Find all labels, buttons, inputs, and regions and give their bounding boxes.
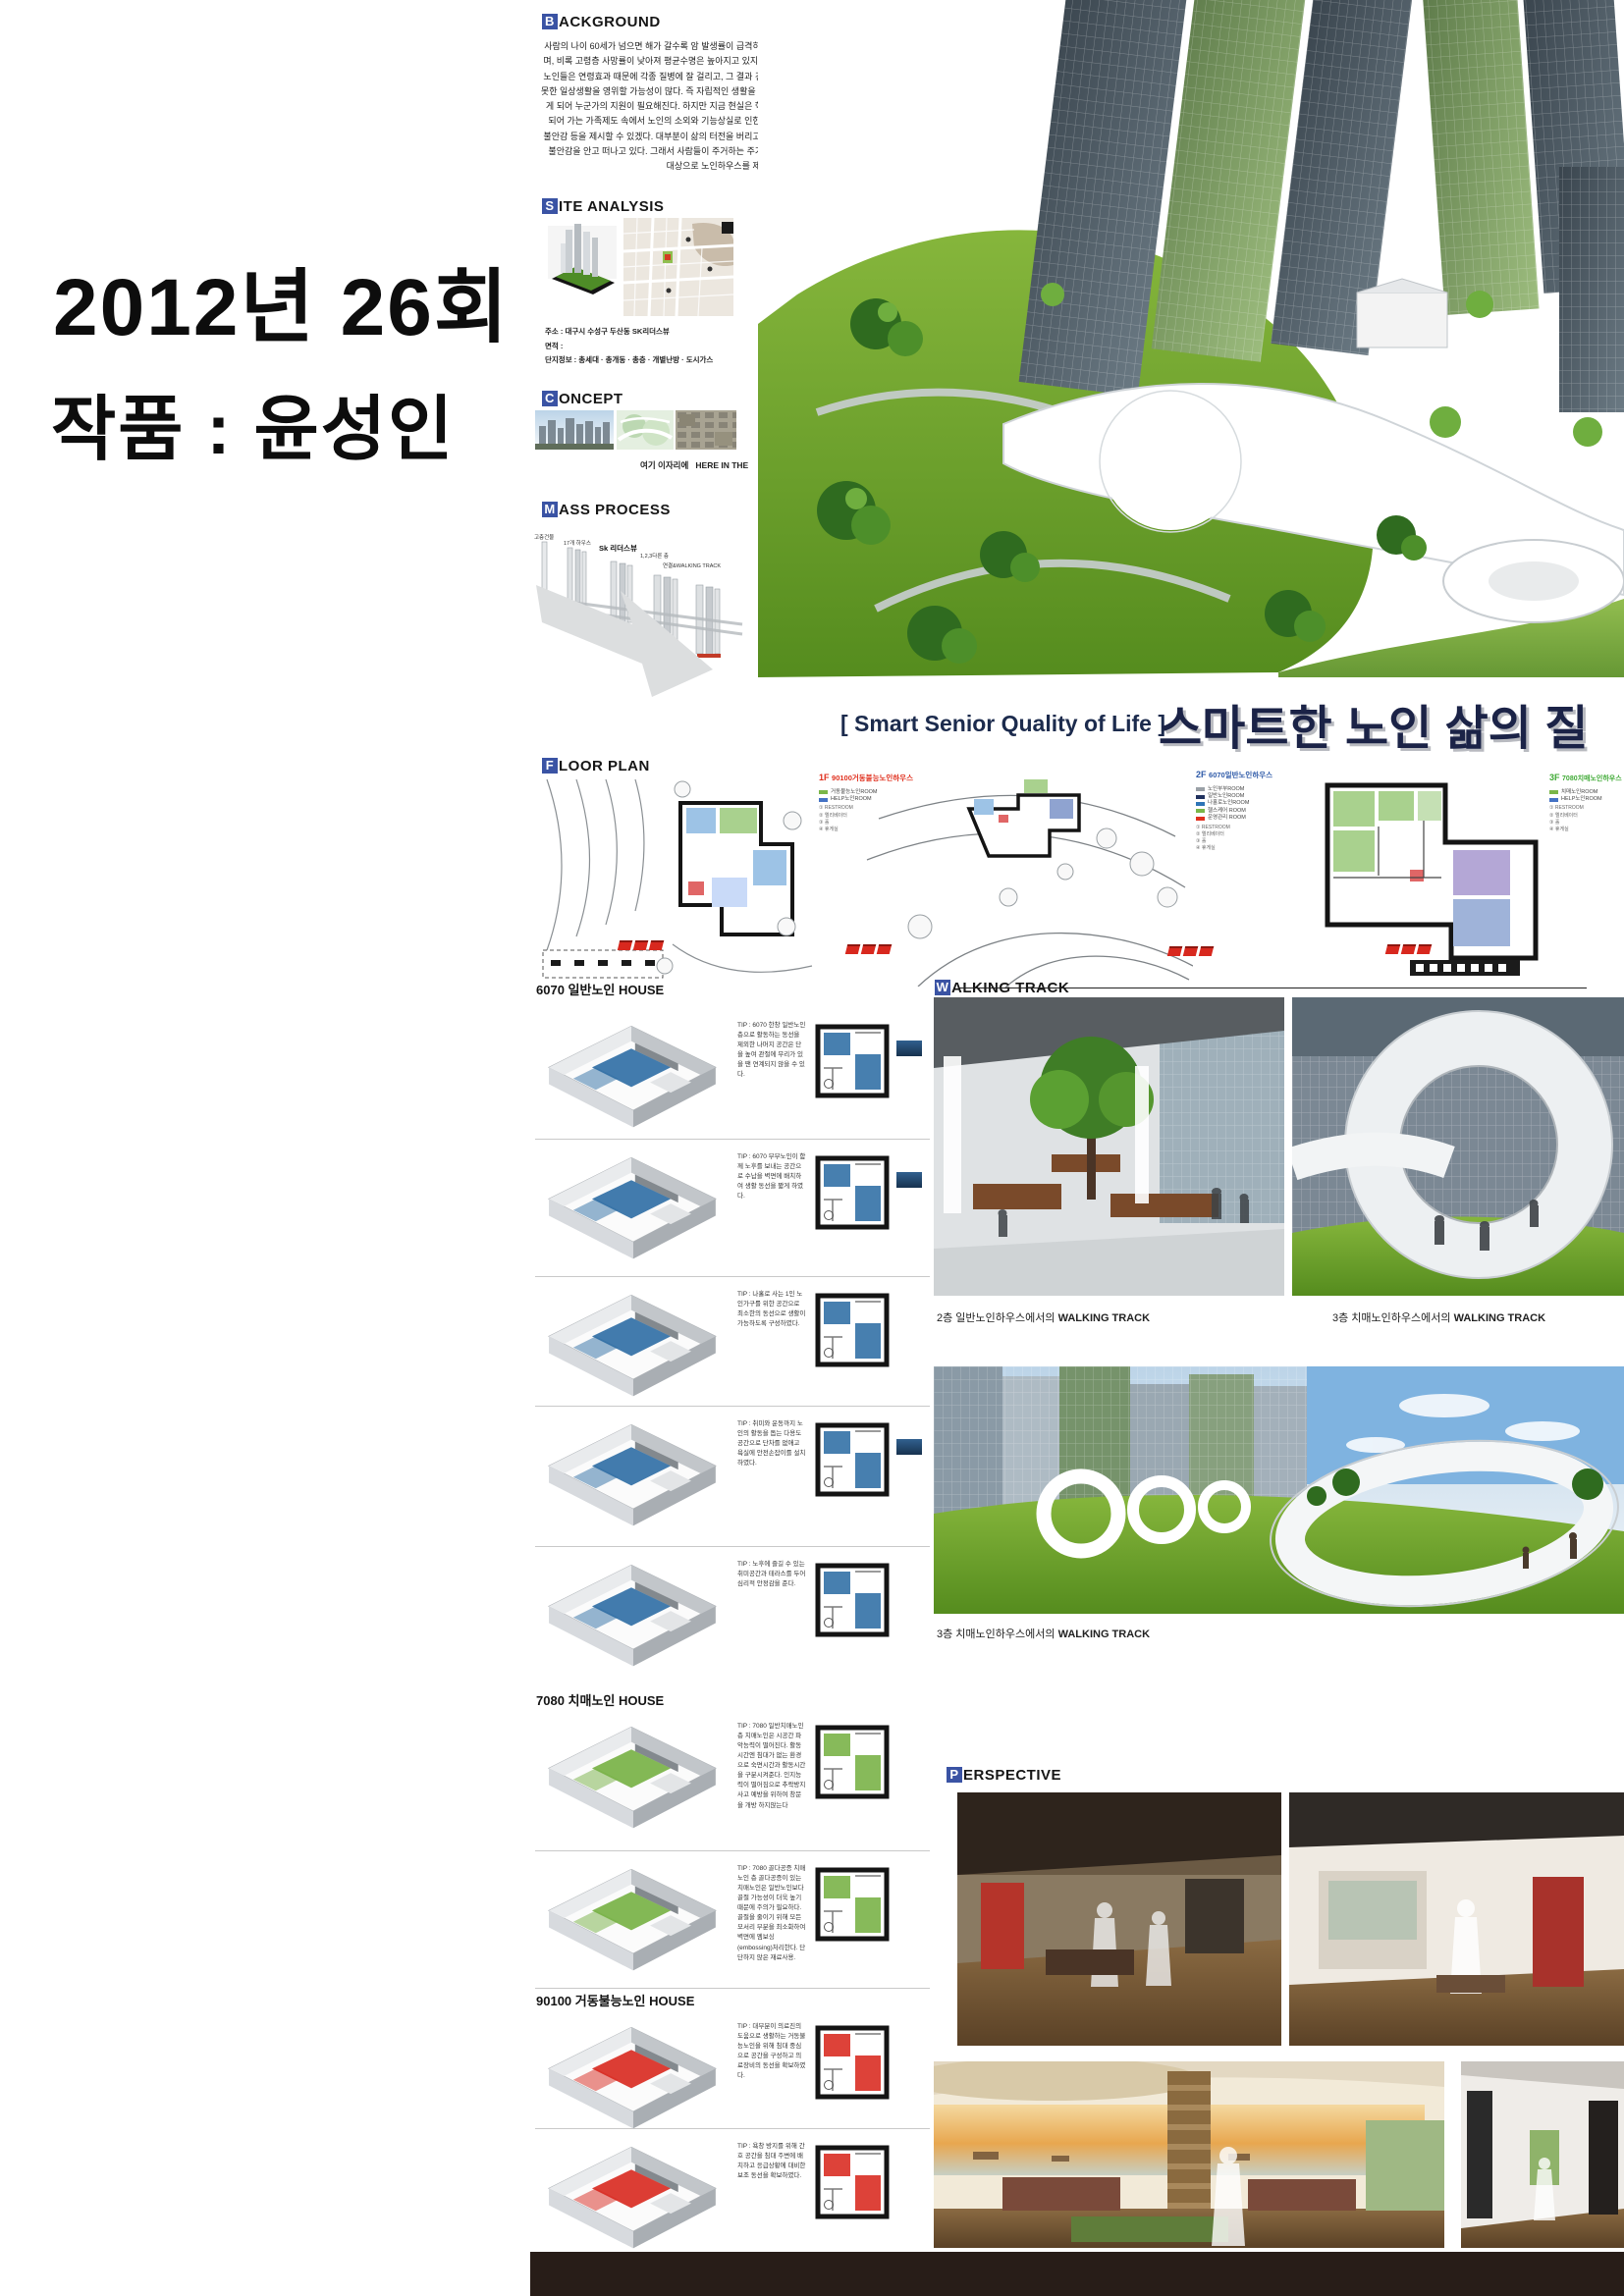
perspective-interior-sunset-lounge: [934, 2061, 1444, 2248]
site-address: 주소 : 대구시 수성구 두산동 SK리더스뷰: [545, 326, 670, 337]
unit-plan: [814, 1866, 891, 1943]
unit-axon-model: [535, 1282, 728, 1404]
section-header-floor-plan: FLOOR PLAN: [542, 758, 650, 774]
mass-step-label: 연결&WALKING TRACK: [663, 561, 721, 569]
plan-notes: ① RESTROOM② 엘리베이터 ③ 홀④ 휴게실: [1549, 805, 1624, 833]
walking-track-loop-render: [1292, 997, 1624, 1296]
unit-row: TIP : 7080 일반치매노인 층 치매노인은 시공간 파악능력이 떨어진다…: [535, 1708, 930, 1851]
legend-swatch: [819, 798, 828, 802]
concept-caption: 여기 이자리에 HERE IN THE: [640, 459, 748, 471]
mass-step-label: 1,2,3다른 층: [640, 552, 669, 560]
red-mass-icons: [1386, 944, 1431, 954]
unit-tip: TIP : 대부분이 의료진의 도움으로 생활하는 거동불능노인을 위해 침대 …: [737, 2022, 806, 2081]
unit-row: TIP : 대부분이 의료진의 도움으로 생활하는 거동불능노인을 위해 침대 …: [535, 2008, 930, 2129]
concept-image-green: [617, 410, 674, 450]
floor-plan-2f-drawing: [859, 777, 1193, 987]
competition-board: BACKGROUND 사람의 나이 60세가 넘으면 해가 갈수록 암 발생률이…: [530, 0, 1624, 2296]
section-header-background: BACKGROUND: [542, 14, 661, 30]
title-english: [ Smart Senior Quality of Life ]: [840, 711, 1165, 737]
site-info: 단지정보 : 총세대 · 총개동 · 총층 · 개별난방 · 도시가스: [545, 354, 713, 365]
unit-tip: TIP : 7080 골다공증 치매노인 층 골다공증이 있는 치매노인은 일반…: [737, 1864, 806, 1963]
concept-image-city: [535, 410, 614, 450]
concept-image-aerial: [676, 410, 736, 450]
perspective-interior-corridor: [1461, 2061, 1624, 2248]
unit-plan: [814, 1023, 891, 1099]
floor-plan-3f-drawing: [1316, 775, 1546, 987]
legend-swatch: [819, 790, 828, 794]
walking-track-caption-left: 2층 일반노인하우스에서의 WALKING TRACK: [937, 1309, 1150, 1325]
perspective-interior-lounge: [957, 1792, 1281, 2046]
unit-plan: [814, 1421, 891, 1498]
floor-plan-1f-drawing: [535, 777, 815, 987]
unit-row: TIP : 취미와 운동까지 노인의 활동을 돕는 다용도 공간으로 단차를 없…: [535, 1406, 930, 1547]
poster-scan: 2012년 26회 작품 : 윤성인: [0, 0, 1624, 2296]
unit-tip: TIP : 욕창 방지를 위해 간호 공간을 침대 주변에 배치하고 응급상황에…: [737, 2142, 806, 2181]
process-arrow: [536, 579, 718, 699]
section-header-perspective: PERSPECTIVE: [947, 1767, 1061, 1784]
unit-tip: TIP : 취미와 운동까지 노인의 활동을 돕는 다용도 공간으로 단차를 없…: [737, 1419, 806, 1468]
unit-row: TIP : 6070 부부노인이 함께 노후를 보내는 공간으로 수납을 벽면에…: [535, 1139, 930, 1277]
unit-axon-model: [535, 1714, 728, 1836]
background-paragraph: 사람의 나이 60세가 넘으면 해가 갈수록 암 발생률이 급격히 높아지며, …: [538, 39, 787, 175]
unit-axon-model: [535, 1145, 728, 1266]
mass-step-label: 고층건물: [534, 533, 554, 541]
title-korean: 스마트한 노인 삶의 질: [1159, 689, 1588, 758]
unit-row: TIP : 나홀로 사는 1인 노인가구를 위한 공간으로 최소한의 동선으로 …: [535, 1276, 930, 1407]
unit-row: TIP : 7080 골다공증 치매노인 층 골다공증이 있는 치매노인은 일반…: [535, 1850, 930, 1989]
unit-tip: TIP : 노후에 즐길 수 있는 취미공간과 테라스를 두어 심리적 안정감을…: [737, 1560, 806, 1589]
bottom-black-band: [530, 2252, 1624, 2296]
walking-track-caption-big: 3층 치매노인하우스에서의 WALKING TRACK: [937, 1626, 1150, 1641]
house-header-6070: 6070 일반노인 HOUSE: [536, 980, 664, 998]
unit-plan: [814, 2024, 891, 2101]
house-header-90100: 90100 거동불능노인 HOUSE: [536, 1991, 694, 2009]
section-header-site-analysis: SITE ANALYSIS: [542, 198, 664, 215]
walking-track-courtyard-render: [934, 997, 1284, 1296]
unit-axon-model: [535, 2134, 728, 2256]
section-header-mass-process: MASS PROCESS: [542, 502, 671, 518]
unit-tip: TIP : 6070 한창 일반노인 층으로 활동하는 동선을 제외한 나머지 …: [737, 1021, 806, 1080]
unit-plan: [814, 1154, 891, 1231]
site-area: 면적 :: [545, 341, 563, 351]
floor-plan-3f-label: 3F 7080치매노인하우스 치매노인ROOM HELP노인ROOM ① RES…: [1549, 772, 1624, 833]
floor-plan-2f-label: 2F 6070일반노인하우스 노인부부ROOM 일반노인ROOM 나홀로노인RO…: [1196, 769, 1312, 853]
red-mass-icons: [846, 944, 891, 954]
unit-thumb: [896, 1172, 922, 1188]
credit-author: 작품 : 윤성인: [51, 371, 455, 474]
unit-plan: [814, 1292, 891, 1368]
unit-thumb: [896, 1041, 922, 1056]
unit-axon-model: [535, 1552, 728, 1674]
site-model-image: [546, 218, 619, 316]
unit-plan: [814, 1562, 891, 1638]
unit-tip: TIP : 나홀로 사는 1인 노인가구를 위한 공간으로 최소한의 동선으로 …: [737, 1290, 806, 1329]
house-header-7080: 7080 치매노인 HOUSE: [536, 1690, 664, 1709]
mass-step-label: Sk 리더스뷰: [599, 543, 637, 554]
mass-step-label: 17개 하우스: [564, 539, 591, 547]
unit-tip: TIP : 7080 일반치매노인 층 치매노인은 시공간 파악능력이 떨어진다…: [737, 1722, 806, 1811]
hero-render: [758, 0, 1624, 693]
plan-notes: ① RESTROOM② 엘리베이터 ③ 홀④ 휴게실: [1196, 825, 1312, 853]
walking-track-lawn-render: [934, 1366, 1624, 1614]
unit-axon-model: [535, 2014, 728, 2136]
red-mass-icons: [1168, 946, 1213, 956]
unit-axon-model: [535, 1856, 728, 1978]
unit-plan: [814, 1724, 891, 1800]
unit-axon-model: [535, 1013, 728, 1135]
unit-row: TIP : 노후에 즐길 수 있는 취미공간과 테라스를 두어 심리적 안정감을…: [535, 1546, 930, 1685]
header-cap-box: B: [542, 14, 558, 29]
credit-year: 2012년 26회: [53, 241, 510, 358]
header-rule: [958, 988, 1587, 988]
site-map-image: [623, 218, 733, 316]
unit-plan: [814, 2144, 891, 2220]
red-mass-icons: [619, 940, 663, 950]
walking-track-caption-right: 3층 치매노인하우스에서의 WALKING TRACK: [1332, 1309, 1624, 1325]
unit-row: TIP : 6070 한창 일반노인 층으로 활동하는 동선을 제외한 나머지 …: [535, 1007, 930, 1140]
unit-thumb: [896, 1439, 922, 1455]
unit-row: TIP : 욕창 방지를 위해 간호 공간을 침대 주변에 배치하고 응급상황에…: [535, 2128, 930, 2248]
unit-tip: TIP : 6070 부부노인이 함께 노후를 보내는 공간으로 수납을 벽면에…: [737, 1152, 806, 1201]
unit-axon-model: [535, 1412, 728, 1533]
perspective-interior-livingroom: [1289, 1792, 1624, 2046]
section-header-concept: CONCEPT: [542, 391, 623, 407]
